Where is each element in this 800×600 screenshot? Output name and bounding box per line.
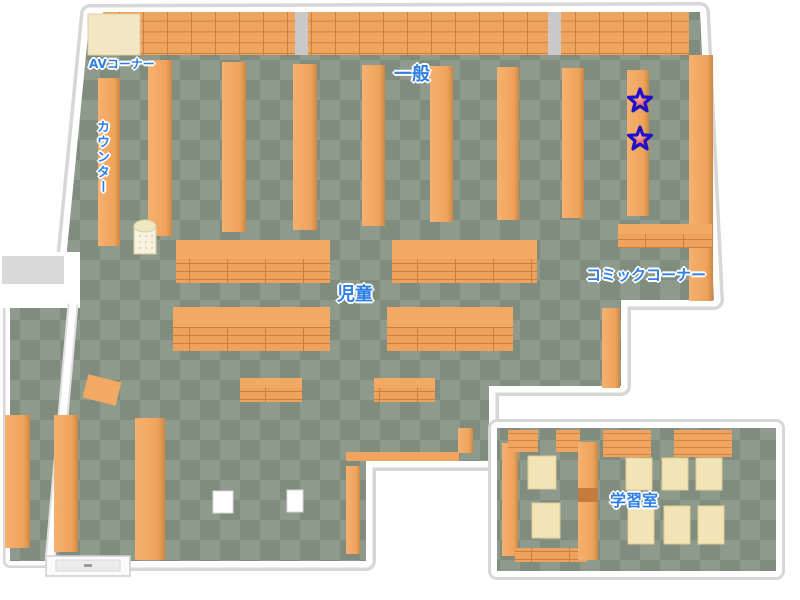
bookshelf bbox=[556, 430, 580, 452]
study-table bbox=[696, 458, 722, 490]
study-table bbox=[528, 456, 556, 489]
bench bbox=[240, 378, 302, 402]
bookshelf bbox=[458, 428, 473, 453]
study-table bbox=[664, 506, 690, 544]
bookshelf bbox=[54, 415, 78, 552]
bookshelf bbox=[308, 12, 548, 55]
top-wall-bookshelf-band bbox=[103, 12, 689, 55]
area-label-general: 一般 bbox=[394, 60, 430, 86]
wall-block-top bbox=[2, 256, 64, 284]
entrance-door bbox=[46, 556, 130, 576]
bookshelf bbox=[497, 67, 519, 220]
library-floor-map: AVコーナー カウンター 一般 児童 コミックコーナー 学習室 bbox=[0, 0, 800, 600]
kids-shelf bbox=[173, 307, 330, 351]
pillar bbox=[548, 12, 561, 55]
bookshelf bbox=[430, 66, 453, 222]
kiosk-box bbox=[213, 491, 233, 513]
area-label-av-corner: AVコーナー bbox=[89, 55, 155, 72]
bookshelf bbox=[135, 418, 165, 560]
divider-shelf bbox=[578, 442, 598, 560]
area-label-children: 児童 bbox=[337, 280, 373, 306]
magazine-rack-cylinder bbox=[134, 220, 156, 254]
bookshelf bbox=[148, 60, 172, 236]
bookshelf bbox=[346, 466, 360, 554]
bookshelf bbox=[293, 64, 317, 230]
bookshelf bbox=[515, 548, 587, 562]
study-table bbox=[698, 506, 724, 544]
bookshelf bbox=[603, 430, 651, 457]
kiosk-box bbox=[287, 490, 303, 512]
bookshelf bbox=[618, 234, 712, 248]
bookshelf bbox=[502, 443, 518, 556]
floor-map bbox=[0, 0, 800, 600]
study-table bbox=[532, 503, 560, 538]
bookshelf bbox=[618, 224, 712, 234]
study-table bbox=[628, 506, 654, 544]
bookshelf bbox=[602, 308, 620, 388]
bookshelf bbox=[5, 415, 30, 548]
kids-shelf bbox=[387, 307, 513, 351]
bookshelf bbox=[362, 65, 385, 226]
study-table bbox=[662, 458, 688, 490]
pillar bbox=[295, 12, 308, 55]
study-table bbox=[626, 458, 652, 490]
bookshelf bbox=[561, 12, 689, 55]
wall-block bbox=[0, 252, 80, 308]
bench bbox=[374, 378, 435, 402]
kids-shelf bbox=[392, 240, 537, 283]
bookshelf bbox=[346, 452, 459, 461]
bookshelf bbox=[508, 430, 538, 452]
kids-shelf bbox=[176, 240, 330, 283]
bookshelf bbox=[674, 430, 732, 457]
area-label-comic-corner: コミックコーナー bbox=[586, 264, 706, 285]
av-counter bbox=[88, 14, 140, 55]
bookshelf bbox=[222, 62, 246, 232]
area-label-study-room: 学習室 bbox=[610, 487, 658, 511]
bookshelf bbox=[562, 68, 584, 218]
door-handle-icon bbox=[84, 564, 92, 567]
area-label-counter: カウンター bbox=[92, 120, 111, 195]
